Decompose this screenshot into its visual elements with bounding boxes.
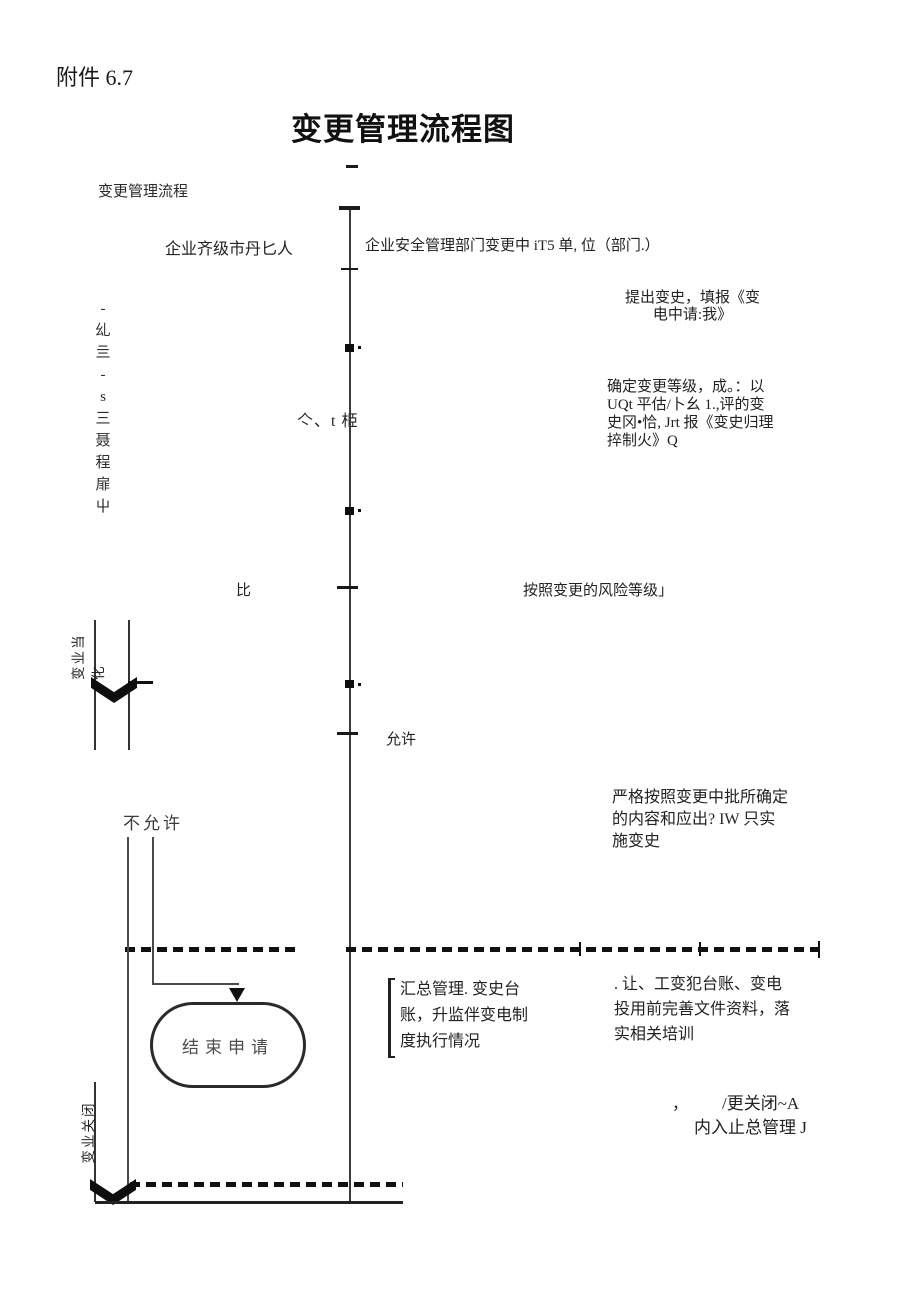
flow-node-dot (358, 509, 361, 512)
lane-left-header: 企业齐级市丹匕人 (165, 235, 293, 259)
step-improve-files: . 让、工变犯台账、变电 投用前完善文件资料，落 实相关培训 (614, 972, 824, 1047)
step-implement-change: 严格按照变更中批所确定 的内容和应出? IW 只实 施变史 (612, 787, 847, 853)
flow-line-tick (341, 268, 358, 270)
deny-branch-line-outer (127, 837, 129, 1203)
dashed-separator-cross (699, 942, 701, 956)
bottom-border-line (95, 1201, 403, 1204)
deny-branch-line-inner (152, 837, 154, 985)
attachment-label: 附件 6.7 (56, 60, 133, 92)
step-risk-level: 按照变更的风险等级」 (523, 579, 673, 600)
branch-deny-label: 不允许 (123, 809, 183, 834)
main-flow-line (349, 208, 351, 1204)
terminator-end-request: 结束申请 (150, 1002, 306, 1088)
margin-artifact-column: - 乣 亖 - s 三 聂 程 扉 屮 (88, 298, 118, 518)
flow-node-square (345, 680, 354, 688)
step-summary-ledger: 汇总管理. 变史台 账，升监伴变电制 度执行情况 (400, 977, 570, 1055)
document-page: 附件 6.7 变更管理流程图 变更管理流程 企业齐级市丹匕人 企业安全管理部门变… (0, 0, 920, 1301)
close-note-line1: /更关闭~A (722, 1089, 799, 1114)
dashed-separator-left (125, 947, 297, 952)
flow-node-dot (358, 346, 361, 349)
flow-line-start-tick (339, 206, 360, 210)
page-title: 变更管理流程图 (291, 104, 515, 149)
dashed-separator-bottom (130, 1182, 403, 1187)
banner-approval-label: 变业当化 (74, 622, 100, 680)
close-note-comma: ， (672, 1090, 688, 1114)
deny-branch-elbow (152, 983, 239, 985)
dashed-separator-cross (579, 942, 581, 956)
step-propose-change: 提出变史，填报《变 电中请:我》 (620, 290, 765, 324)
terminator-label: 结束申请 (182, 1033, 274, 1058)
dashed-separator-right (346, 947, 819, 952)
dashed-separator-end-tick (818, 941, 820, 958)
label-compare: 比 (236, 579, 251, 600)
lane-right-header: 企业安全管理部门变更中 iT5 单, 位（部门.） (365, 234, 660, 255)
branch-allow-label: 允许 (386, 728, 416, 749)
bracket-glyph (388, 978, 395, 1058)
flow-line-tick (337, 586, 358, 589)
flow-node-dot (358, 683, 361, 686)
close-note-line2: 内入止总管理 J (694, 1113, 807, 1138)
flow-node-square (345, 507, 354, 515)
flow-line-top-dash (346, 165, 358, 168)
step-grade-change: 确定变更等级，成。：以 UQt 平估/卜幺 1.,评的变 史冈•恰, Jrt 报… (607, 378, 792, 450)
flow-caption: 变更管理流程 (98, 180, 188, 201)
arrowhead-down-icon (229, 988, 245, 1002)
banner-close-label: 变业关闭 (74, 1090, 100, 1175)
flow-node-square (345, 344, 354, 352)
flow-line-tick (337, 732, 358, 735)
